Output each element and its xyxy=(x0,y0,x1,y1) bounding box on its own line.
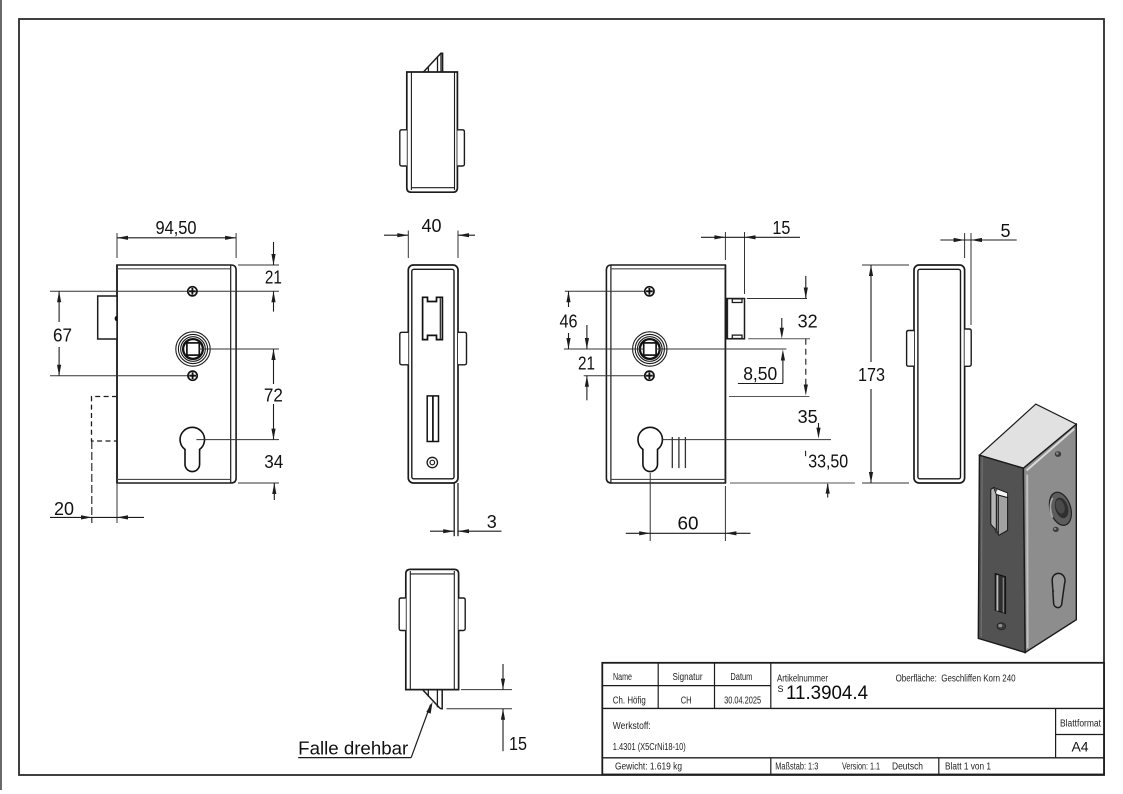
svg-text:Deutsch: Deutsch xyxy=(892,761,923,772)
svg-text:Werkstoff:: Werkstoff: xyxy=(613,721,651,732)
svg-text:CH: CH xyxy=(681,695,692,706)
svg-text:Signatur: Signatur xyxy=(673,672,704,683)
svg-text:21: 21 xyxy=(578,354,595,374)
svg-text:15: 15 xyxy=(772,218,790,238)
svg-text:21: 21 xyxy=(265,268,282,288)
svg-text:32: 32 xyxy=(798,311,818,331)
svg-text:Blattformat: Blattformat xyxy=(1060,718,1101,729)
svg-text:S: S xyxy=(778,684,784,694)
svg-text:40: 40 xyxy=(422,216,442,236)
svg-text:1.4301 (X5CrNi18-10): 1.4301 (X5CrNi18-10) xyxy=(613,742,686,753)
svg-text:3: 3 xyxy=(487,512,497,532)
svg-text:Version: 1.1: Version: 1.1 xyxy=(842,761,880,772)
svg-text:A4: A4 xyxy=(1071,739,1088,755)
svg-text:15: 15 xyxy=(509,734,527,754)
svg-text:Ch. Höfig: Ch. Höfig xyxy=(613,695,646,706)
svg-text:Datum: Datum xyxy=(730,672,752,683)
svg-text:173: 173 xyxy=(858,365,885,385)
svg-text:11.3904.4: 11.3904.4 xyxy=(786,682,868,704)
svg-text:67: 67 xyxy=(53,326,72,346)
svg-text:Oberfläche: Geschliffen Korn: Oberfläche: Geschliffen Korn 240 xyxy=(896,674,1016,685)
svg-text:94,50: 94,50 xyxy=(156,218,197,238)
svg-text:33,50: 33,50 xyxy=(808,451,848,471)
svg-text:Falle drehbar: Falle drehbar xyxy=(298,739,408,759)
svg-text:72: 72 xyxy=(264,385,283,405)
svg-text:20: 20 xyxy=(54,499,74,519)
svg-text:Name: Name xyxy=(613,672,632,683)
svg-text:8,50: 8,50 xyxy=(743,364,777,384)
svg-text:34: 34 xyxy=(264,452,283,472)
svg-text:60: 60 xyxy=(678,514,699,534)
svg-text:5: 5 xyxy=(1000,221,1010,241)
svg-text:Blatt 1 von 1: Blatt 1 von 1 xyxy=(945,761,991,772)
svg-text:30.04.2025: 30.04.2025 xyxy=(724,695,761,706)
svg-text:Gewicht: 1.619 kg: Gewicht: 1.619 kg xyxy=(615,761,682,772)
svg-text:Maßstab: 1:3: Maßstab: 1:3 xyxy=(775,761,818,772)
svg-text:35: 35 xyxy=(798,407,818,427)
svg-text:46: 46 xyxy=(560,311,578,331)
